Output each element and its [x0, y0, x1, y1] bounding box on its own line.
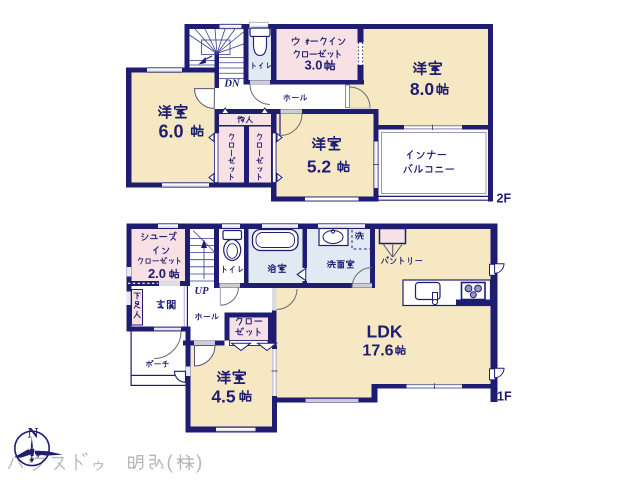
svg-text:8.0: 8.0: [410, 79, 435, 99]
svg-text:2F: 2F: [497, 192, 512, 206]
svg-text:1F: 1F: [497, 390, 512, 404]
svg-text:3.0: 3.0: [304, 58, 322, 73]
svg-text:6.0: 6.0: [158, 122, 183, 142]
svg-text:): ): [196, 453, 202, 474]
svg-text:4.5: 4.5: [211, 387, 236, 407]
svg-text:2.0: 2.0: [148, 266, 166, 281]
svg-text:DN: DN: [223, 79, 240, 90]
svg-text:(: (: [167, 453, 174, 474]
svg-text:5.2: 5.2: [307, 157, 332, 177]
svg-text:UP: UP: [195, 286, 210, 297]
svg-text:17.6: 17.6: [362, 343, 393, 360]
svg-text:LDK: LDK: [367, 322, 403, 342]
svg-text:N: N: [28, 426, 39, 442]
